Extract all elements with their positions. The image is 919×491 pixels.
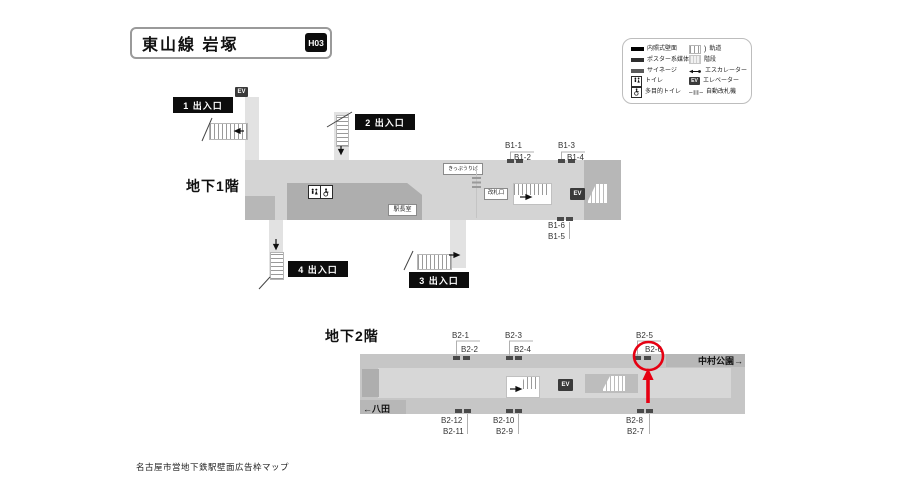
legend-item-accessible-toilet: 多目的トイレ: [631, 87, 689, 97]
legend-item-toilet: トイレ: [631, 76, 689, 86]
ad-label-b2-8: B2-8: [626, 417, 643, 425]
b2-center-stairs: [506, 376, 540, 398]
station-ad-map: 東山線 岩塚 H03 内照式壁面 ポスター系媒体 サイネージ: [0, 0, 919, 491]
legend-item-escalator: エスカレーター: [689, 66, 747, 76]
legend-item-signage: サイネージ: [631, 66, 689, 76]
ticket-window-tag: きっぷうりば: [443, 163, 483, 175]
b2-inner-area: [378, 368, 731, 398]
b2-right-stairs-block: [585, 374, 638, 393]
exit-4-label: 4 出入口: [288, 261, 348, 277]
ad-position-b1-5: [566, 217, 573, 221]
ad-label-b1-5: B1-5: [548, 233, 565, 241]
ad-position-b2-9: [515, 409, 522, 413]
station-master-room-tag: 駅長室: [388, 204, 417, 216]
stairs-hatch: [519, 377, 538, 389]
b2-left-block: [362, 369, 379, 397]
b2-floor-label: 地下2階: [325, 326, 379, 346]
exit-2-label: 2 出入口: [355, 114, 415, 130]
exit-1-label: 1 出入口: [173, 97, 233, 113]
toilet-icon: [631, 76, 642, 87]
ad-position-b2-5: [634, 356, 641, 360]
legend-item-ticket-gate: 自動改札機: [689, 87, 747, 97]
ad-position-b2-10: [506, 409, 513, 413]
accessible-toilet-icon: [322, 188, 331, 197]
legend-label: 自動改札機: [706, 89, 736, 95]
b1-center-stairs: [513, 183, 552, 205]
b1-elevator-exit1: EV: [235, 87, 248, 97]
exit-3-stairs: [417, 254, 452, 270]
ad-position-b2-6: [644, 356, 651, 360]
legend-label: 軌道: [709, 46, 721, 52]
accessible-toilet-icon: [631, 87, 642, 98]
legend-item-track: ) 軌道: [689, 44, 747, 54]
legend: 内照式壁面 ポスター系媒体 サイネージ トイレ: [622, 38, 752, 104]
ad-label-b2-12: B2-12: [441, 417, 462, 425]
legend-label: トイレ: [645, 78, 663, 84]
ad-label-b1-3: B1-3: [558, 142, 575, 150]
legend-label: サイネージ: [647, 68, 677, 74]
ad-label-b2-7: B2-7: [627, 428, 644, 436]
exit-3-corridor: [450, 220, 466, 268]
legend-column-right: ) 軌道 階段 エスカレーター EV エレベーター: [689, 44, 747, 97]
exit-4-entrance-line: [259, 277, 270, 289]
stairs-hatch: [602, 376, 625, 391]
ad-label-b2-6: B2-6: [645, 346, 662, 354]
ad-label-b2-11: B2-11: [443, 428, 464, 436]
ad-label-b2-5: B2-5: [636, 332, 653, 340]
stairs-hatch: [514, 184, 550, 195]
ad-position-b2-2: [463, 356, 470, 360]
ticket-gate-icon: [689, 83, 703, 101]
direction-hatta: ←八田: [363, 402, 390, 415]
b1-floor-label: 地下1階: [186, 176, 240, 196]
track-icon: [689, 45, 701, 54]
station-title-box: 東山線 岩塚 H03: [130, 27, 332, 59]
legend-item-poster-media: ポスター系媒体: [631, 55, 689, 65]
legend-label: エスカレーター: [705, 68, 747, 74]
signage-icon: [631, 69, 644, 73]
b1-elevator: EV: [570, 188, 585, 200]
ad-label-b1-4: B1-4: [567, 154, 584, 162]
ad-position-b2-4: [515, 356, 522, 360]
ad-position-b2-7: [646, 409, 653, 413]
legend-item-illuminated-wall: 内照式壁面: [631, 44, 689, 54]
ad-label-b1-6: B1-6: [548, 222, 565, 230]
ad-label-b1-1: B1-1: [505, 142, 522, 150]
station-code-badge: H03: [305, 33, 327, 52]
b2-elevator: EV: [558, 379, 573, 391]
station-title: 東山線 岩塚: [142, 31, 238, 55]
ad-label-b2-10: B2-10: [493, 417, 514, 425]
footer-caption: 名古屋市営地下鉄駅壁面広告枠マップ: [136, 461, 289, 473]
legend-label: 内照式壁面: [647, 46, 677, 52]
legend-label: エレベーター: [703, 78, 739, 84]
exit-1-stairs: [209, 123, 248, 140]
ad-label-b2-3: B2-3: [505, 332, 522, 340]
track-paren: ): [704, 46, 706, 53]
ad-label-b2-9: B2-9: [496, 428, 513, 436]
ad-label-b2-2: B2-2: [461, 346, 478, 354]
ad-label-b2-1: B2-1: [452, 332, 469, 340]
toilet-icon: [310, 188, 319, 197]
legend-label: ポスター系媒体: [647, 57, 689, 63]
legend-label: 階段: [704, 57, 716, 63]
exit-3-label: 3 出入口: [409, 272, 469, 288]
legend-label: 多目的トイレ: [645, 89, 681, 95]
legend-column-left: 内照式壁面 ポスター系媒体 サイネージ トイレ: [631, 44, 689, 97]
ad-position-b2-12: [455, 409, 462, 413]
exit-3-entrance-line: [404, 251, 413, 270]
poster-media-icon: [631, 58, 644, 62]
ad-position-b2-11: [464, 409, 471, 413]
b1-accessible-toilet: [320, 185, 333, 199]
ad-position-b1-3: [558, 159, 565, 163]
exit-2-stairs: [336, 115, 349, 147]
ad-label-b2-4: B2-4: [514, 346, 531, 354]
ad-label-b1-2: B1-2: [514, 154, 531, 162]
direction-nakamura-koen: 中村公園→: [698, 354, 743, 367]
illuminated-wall-icon: [631, 47, 644, 51]
gate-tag: 改札口: [484, 188, 508, 200]
exit-4-stairs: [270, 252, 284, 280]
ad-position-b2-3: [506, 356, 513, 360]
ad-position-b2-1: [453, 356, 460, 360]
ad-position-b2-8: [637, 409, 644, 413]
ad-position-b1-1: [507, 159, 514, 163]
b1-left-block: [245, 196, 275, 220]
